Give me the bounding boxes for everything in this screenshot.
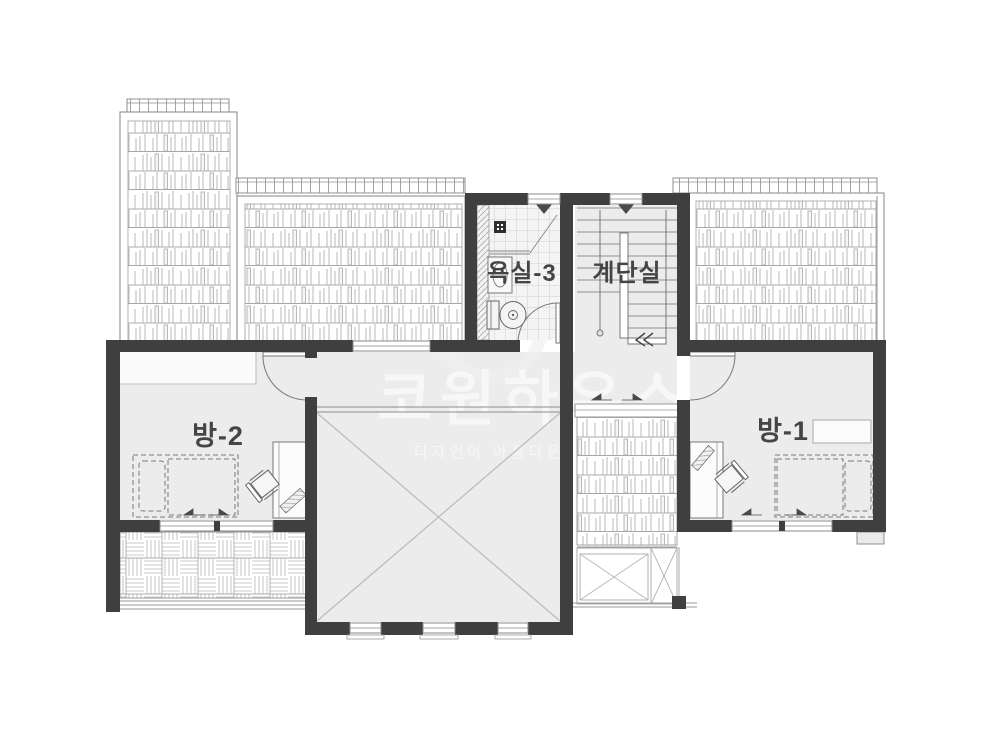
- roof-top-left-tower: [120, 99, 237, 342]
- wall-segment: [677, 400, 690, 520]
- roof-ridge-cap: [236, 178, 465, 193]
- stair-window: [610, 194, 642, 204]
- roof-top-left-lower: [236, 178, 465, 342]
- floor-plan-svg: 코원하우스 디자인이 아름다운 집: [0, 0, 1000, 750]
- wall-segment: [560, 352, 573, 635]
- roof-ridge-cap: [673, 178, 877, 193]
- label-staircase: 계단실: [592, 260, 661, 287]
- label-room2: 방-2: [192, 421, 244, 451]
- exterior-step: [857, 532, 884, 544]
- wall-segment: [560, 193, 573, 352]
- wall-segment: [873, 340, 886, 532]
- wall-segment: [106, 520, 160, 532]
- deck-post: [672, 596, 686, 609]
- wall-segment: [528, 622, 573, 635]
- wall-segment: [465, 193, 477, 352]
- bathroom-window: [528, 194, 560, 204]
- wall-segment: [677, 340, 886, 352]
- wall-segment: [677, 520, 732, 532]
- door-hinge-post: [305, 348, 317, 358]
- wall-segment: [106, 340, 120, 612]
- roof-top-right: [673, 178, 884, 342]
- wall-segment: [560, 340, 573, 352]
- void-windows: [347, 623, 531, 639]
- wall-segment: [305, 622, 350, 635]
- roof-lower-center: [575, 404, 679, 547]
- toilet-icon: [487, 301, 526, 329]
- label-room1: 방-1: [757, 416, 809, 446]
- room1-window: [732, 521, 832, 531]
- wall-segment: [381, 622, 423, 635]
- wall-segment: [677, 193, 690, 356]
- shower-drain-icon: [494, 221, 506, 233]
- wall-segment: [465, 340, 520, 352]
- wall-segment: [273, 520, 317, 532]
- balcony-parquet-deck: [120, 532, 306, 609]
- label-bathroom: 욕실-3: [487, 260, 557, 287]
- wall-segment: [455, 622, 498, 635]
- room2-window: [160, 521, 273, 531]
- wall-segment: [305, 397, 317, 635]
- dresser-icon: [813, 420, 871, 443]
- floor-plan-canvas: 코원하우스 디자인이 아름다운 집: [0, 0, 1000, 750]
- hall-window: [353, 341, 430, 351]
